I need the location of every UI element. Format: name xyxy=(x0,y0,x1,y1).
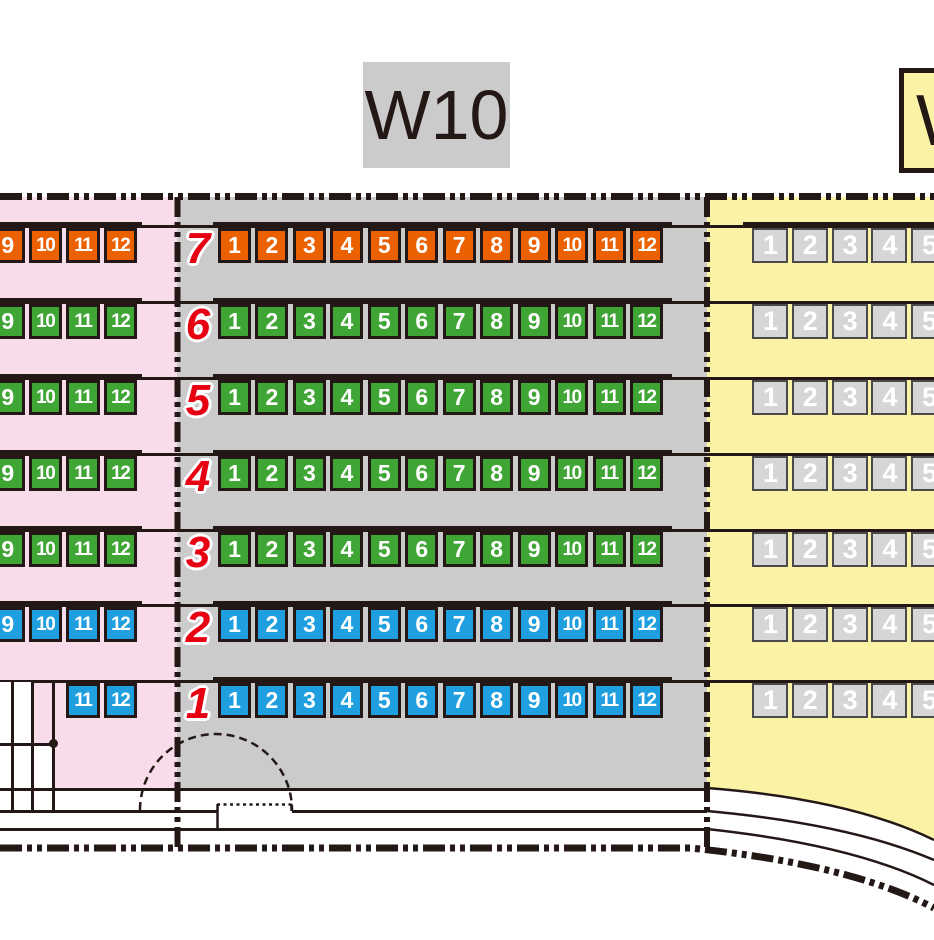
seat-5[interactable]: 5 xyxy=(911,532,934,567)
seat-2[interactable]: 2 xyxy=(255,456,288,491)
seat-7[interactable]: 7 xyxy=(443,456,476,491)
seat-11[interactable]: 11 xyxy=(593,304,626,339)
seat-12[interactable]: 12 xyxy=(104,683,138,718)
seat-4[interactable]: 4 xyxy=(871,683,907,718)
seat-3[interactable]: 3 xyxy=(293,532,326,567)
seat-3[interactable]: 3 xyxy=(293,304,326,339)
seat-11[interactable]: 11 xyxy=(66,456,100,491)
seat-12[interactable]: 12 xyxy=(104,607,138,642)
seat-1[interactable]: 1 xyxy=(752,228,788,263)
seat-7[interactable]: 7 xyxy=(443,380,476,415)
seat-7[interactable]: 7 xyxy=(443,304,476,339)
seat-7[interactable]: 7 xyxy=(443,607,476,642)
seat-5[interactable]: 5 xyxy=(368,456,401,491)
road-line-middle xyxy=(292,810,707,813)
seat-11[interactable]: 11 xyxy=(593,532,626,567)
seat-3[interactable]: 3 xyxy=(832,304,868,339)
seat-1[interactable]: 1 xyxy=(752,532,788,567)
seat-10[interactable]: 10 xyxy=(555,228,588,263)
seat-6[interactable]: 6 xyxy=(405,380,438,415)
seat-4[interactable]: 4 xyxy=(330,228,363,263)
seat-10[interactable]: 10 xyxy=(555,380,588,415)
seat-5[interactable]: 5 xyxy=(368,228,401,263)
seat-12[interactable]: 12 xyxy=(630,456,663,491)
seat-12[interactable]: 12 xyxy=(630,380,663,415)
seat-10[interactable]: 10 xyxy=(555,683,588,718)
seat-11[interactable]: 11 xyxy=(593,607,626,642)
seat-10[interactable]: 10 xyxy=(555,456,588,491)
row-table-bar xyxy=(0,526,142,531)
seat-10[interactable]: 10 xyxy=(29,607,63,642)
seat-9[interactable]: 9 xyxy=(0,456,25,491)
seat-6[interactable]: 6 xyxy=(405,304,438,339)
seat-5[interactable]: 5 xyxy=(911,228,934,263)
row-table-bar xyxy=(0,222,142,227)
seat-5[interactable]: 5 xyxy=(911,607,934,642)
yellow-zone xyxy=(707,197,934,840)
road-line-upper xyxy=(0,788,707,791)
row-table-bar xyxy=(213,450,672,455)
seat-1[interactable]: 1 xyxy=(752,304,788,339)
seat-8[interactable]: 8 xyxy=(480,607,513,642)
seat-4[interactable]: 4 xyxy=(871,380,907,415)
seat-3[interactable]: 3 xyxy=(832,607,868,642)
row-table-bar xyxy=(213,222,672,227)
seat-4[interactable]: 4 xyxy=(330,380,363,415)
seat-5[interactable]: 5 xyxy=(911,304,934,339)
seat-3[interactable]: 3 xyxy=(293,380,326,415)
seat-10[interactable]: 10 xyxy=(29,532,63,567)
block-label-w10: W10 xyxy=(363,62,510,168)
stairs-landing xyxy=(32,744,53,788)
seat-9[interactable]: 9 xyxy=(0,532,25,567)
seat-12[interactable]: 12 xyxy=(104,304,138,339)
row-label-4: 4 xyxy=(177,452,219,502)
seat-3[interactable]: 3 xyxy=(832,683,868,718)
row-label-5: 5 xyxy=(177,376,219,426)
seat-4[interactable]: 4 xyxy=(871,607,907,642)
seat-9[interactable]: 9 xyxy=(518,380,551,415)
row-table-bar xyxy=(0,374,142,379)
seat-1[interactable]: 1 xyxy=(752,380,788,415)
seat-4[interactable]: 4 xyxy=(330,683,363,718)
seat-4[interactable]: 4 xyxy=(871,304,907,339)
seat-1[interactable]: 1 xyxy=(218,532,251,567)
seat-10[interactable]: 10 xyxy=(555,304,588,339)
seat-4[interactable]: 4 xyxy=(871,456,907,491)
row-label-1: 1 xyxy=(177,679,219,729)
seat-8[interactable]: 8 xyxy=(480,380,513,415)
seat-6[interactable]: 6 xyxy=(405,532,438,567)
seat-8[interactable]: 8 xyxy=(480,304,513,339)
seat-9[interactable]: 9 xyxy=(518,607,551,642)
seat-2[interactable]: 2 xyxy=(792,456,828,491)
seat-8[interactable]: 8 xyxy=(480,532,513,567)
seat-2[interactable]: 2 xyxy=(255,607,288,642)
door-swing-arc xyxy=(140,734,292,810)
seat-11[interactable]: 11 xyxy=(66,304,100,339)
block-label-right: W xyxy=(899,68,934,173)
road-line-middle xyxy=(0,810,217,813)
seat-3[interactable]: 3 xyxy=(832,532,868,567)
venue-seating-map: 7910111212345678910111212345691011121234… xyxy=(0,0,934,940)
seat-4[interactable]: 4 xyxy=(330,456,363,491)
row-table-bar xyxy=(213,374,672,379)
seat-5[interactable]: 5 xyxy=(368,532,401,567)
seat-12[interactable]: 12 xyxy=(630,683,663,718)
seat-1[interactable]: 1 xyxy=(752,683,788,718)
seat-10[interactable]: 10 xyxy=(29,304,63,339)
seat-1[interactable]: 1 xyxy=(218,304,251,339)
seat-9[interactable]: 9 xyxy=(518,304,551,339)
seat-1[interactable]: 1 xyxy=(218,683,251,718)
seat-10[interactable]: 10 xyxy=(29,456,63,491)
seat-12[interactable]: 12 xyxy=(630,228,663,263)
seat-2[interactable]: 2 xyxy=(792,228,828,263)
seat-11[interactable]: 11 xyxy=(593,380,626,415)
seat-3[interactable]: 3 xyxy=(293,607,326,642)
road-line-lower xyxy=(0,828,707,831)
seat-9[interactable]: 9 xyxy=(0,607,25,642)
seat-11[interactable]: 11 xyxy=(66,607,100,642)
seat-2[interactable]: 2 xyxy=(255,228,288,263)
seat-2[interactable]: 2 xyxy=(792,683,828,718)
seat-1[interactable]: 1 xyxy=(218,607,251,642)
seat-12[interactable]: 12 xyxy=(104,380,138,415)
seat-10[interactable]: 10 xyxy=(29,380,63,415)
seat-8[interactable]: 8 xyxy=(480,228,513,263)
seat-5[interactable]: 5 xyxy=(911,456,934,491)
seat-9[interactable]: 9 xyxy=(518,228,551,263)
seat-2[interactable]: 2 xyxy=(255,683,288,718)
seat-7[interactable]: 7 xyxy=(443,683,476,718)
row-table-bar xyxy=(743,222,934,227)
seat-4[interactable]: 4 xyxy=(871,532,907,567)
row-label-3: 3 xyxy=(177,528,219,578)
seat-11[interactable]: 11 xyxy=(66,683,100,718)
seat-12[interactable]: 12 xyxy=(630,532,663,567)
seat-5[interactable]: 5 xyxy=(911,380,934,415)
row-table-bar xyxy=(213,601,672,606)
seat-12[interactable]: 12 xyxy=(630,304,663,339)
seat-2[interactable]: 2 xyxy=(792,304,828,339)
row-table-bar xyxy=(0,450,142,455)
seat-12[interactable]: 12 xyxy=(104,532,138,567)
road-curve-lower xyxy=(707,829,934,885)
seat-6[interactable]: 6 xyxy=(405,683,438,718)
seat-11[interactable]: 11 xyxy=(66,228,100,263)
seat-1[interactable]: 1 xyxy=(218,228,251,263)
row-label-7: 7 xyxy=(177,224,219,274)
road-curve-middle xyxy=(707,811,934,860)
seat-12[interactable]: 12 xyxy=(104,228,138,263)
stairs-wall xyxy=(31,682,34,810)
seat-4[interactable]: 4 xyxy=(330,607,363,642)
seat-9[interactable]: 9 xyxy=(518,456,551,491)
seat-11[interactable]: 11 xyxy=(593,228,626,263)
seat-10[interactable]: 10 xyxy=(555,532,588,567)
seat-3[interactable]: 3 xyxy=(832,456,868,491)
seat-2[interactable]: 2 xyxy=(255,380,288,415)
seat-3[interactable]: 3 xyxy=(832,380,868,415)
seat-9[interactable]: 9 xyxy=(0,228,25,263)
row-table-bar xyxy=(0,298,142,303)
seat-2[interactable]: 2 xyxy=(255,304,288,339)
seat-10[interactable]: 10 xyxy=(29,228,63,263)
seat-3[interactable]: 3 xyxy=(293,683,326,718)
seat-6[interactable]: 6 xyxy=(405,607,438,642)
seat-4[interactable]: 4 xyxy=(330,304,363,339)
seat-12[interactable]: 12 xyxy=(630,607,663,642)
bottom-boundary xyxy=(0,848,934,908)
seat-5[interactable]: 5 xyxy=(368,607,401,642)
seat-3[interactable]: 3 xyxy=(293,228,326,263)
seat-9[interactable]: 9 xyxy=(0,304,25,339)
seat-1[interactable]: 1 xyxy=(218,380,251,415)
seat-9[interactable]: 9 xyxy=(0,380,25,415)
seat-2[interactable]: 2 xyxy=(792,380,828,415)
seat-11[interactable]: 11 xyxy=(66,532,100,567)
seat-8[interactable]: 8 xyxy=(480,456,513,491)
seat-2[interactable]: 2 xyxy=(792,607,828,642)
stairs-landing xyxy=(0,682,32,788)
stairs-wall xyxy=(11,682,14,810)
seat-11[interactable]: 11 xyxy=(593,683,626,718)
seat-4[interactable]: 4 xyxy=(330,532,363,567)
row-label-6: 6 xyxy=(177,300,219,350)
seat-1[interactable]: 1 xyxy=(218,456,251,491)
seat-5[interactable]: 5 xyxy=(368,683,401,718)
seat-2[interactable]: 2 xyxy=(255,532,288,567)
road-curve-upper xyxy=(707,788,934,840)
seat-4[interactable]: 4 xyxy=(871,228,907,263)
seat-3[interactable]: 3 xyxy=(832,228,868,263)
seat-9[interactable]: 9 xyxy=(518,532,551,567)
seat-6[interactable]: 6 xyxy=(405,456,438,491)
seat-7[interactable]: 7 xyxy=(443,228,476,263)
wall-node xyxy=(49,739,58,748)
seat-5[interactable]: 5 xyxy=(368,380,401,415)
seat-12[interactable]: 12 xyxy=(104,456,138,491)
row-table-bar xyxy=(213,677,672,682)
stairs-wall xyxy=(0,743,53,746)
seat-7[interactable]: 7 xyxy=(443,532,476,567)
seat-5[interactable]: 5 xyxy=(911,683,934,718)
seat-10[interactable]: 10 xyxy=(555,607,588,642)
row-table-bar xyxy=(0,601,142,606)
seat-11[interactable]: 11 xyxy=(593,456,626,491)
seat-1[interactable]: 1 xyxy=(752,607,788,642)
seat-2[interactable]: 2 xyxy=(792,532,828,567)
row-table-bar xyxy=(213,298,672,303)
row-table-bar xyxy=(213,526,672,531)
seat-9[interactable]: 9 xyxy=(518,683,551,718)
seat-6[interactable]: 6 xyxy=(405,228,438,263)
seat-5[interactable]: 5 xyxy=(368,304,401,339)
row-label-2: 2 xyxy=(177,603,219,653)
seat-11[interactable]: 11 xyxy=(66,380,100,415)
seat-1[interactable]: 1 xyxy=(752,456,788,491)
seat-3[interactable]: 3 xyxy=(293,456,326,491)
seat-8[interactable]: 8 xyxy=(480,683,513,718)
